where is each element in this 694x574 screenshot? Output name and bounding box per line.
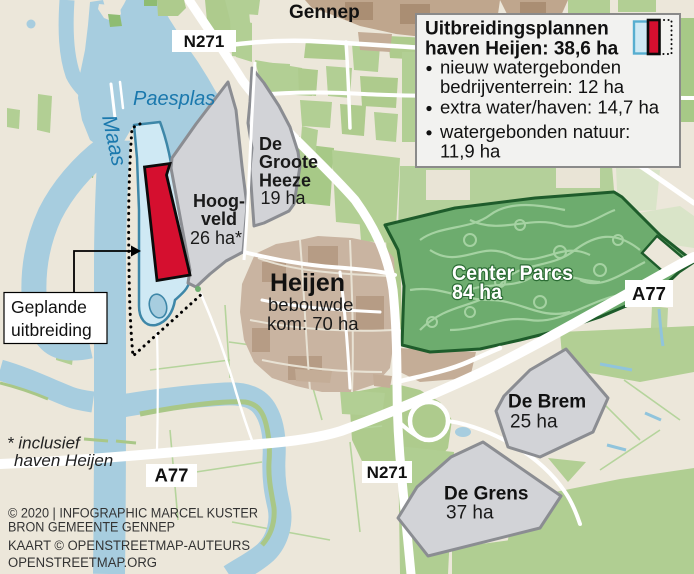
svg-text:A77: A77	[632, 283, 666, 304]
svg-text:19 ha: 19 ha	[261, 188, 307, 208]
svg-text:De Brem: De Brem	[508, 392, 586, 413]
svg-text:haven Heijen: haven Heijen	[14, 451, 113, 470]
svg-text:26 ha*: 26 ha*	[190, 228, 242, 248]
svg-text:37 ha: 37 ha	[446, 503, 494, 524]
svg-text:uitbreiding: uitbreiding	[11, 320, 92, 340]
svg-text:bedrijventerrein: 12 ha: bedrijventerrein: 12 ha	[440, 76, 625, 97]
svg-text:Heijen: Heijen	[270, 269, 345, 297]
svg-text:De: De	[259, 134, 282, 154]
svg-text:veld: veld	[201, 209, 237, 229]
svg-text:A77: A77	[155, 465, 189, 486]
svg-text:N271: N271	[367, 463, 408, 482]
svg-text:kom: 70 ha: kom: 70 ha	[267, 313, 359, 334]
svg-text:OPENSTREETMAP.ORG: OPENSTREETMAP.ORG	[8, 555, 157, 571]
svg-text:Geplande: Geplande	[11, 297, 87, 317]
svg-text:extra water/haven: 14,7 ha: extra water/haven: 14,7 ha	[440, 97, 660, 118]
svg-text:Uitbreidingsplannen: Uitbreidingsplannen	[425, 18, 609, 39]
svg-text:N271: N271	[184, 32, 225, 51]
svg-text:Groote: Groote	[259, 152, 318, 172]
svg-text:Gennep: Gennep	[289, 2, 360, 23]
svg-text:84 ha: 84 ha	[452, 281, 502, 304]
svg-text:nieuw watergebonden: nieuw watergebonden	[440, 57, 621, 78]
svg-text:11,9 ha: 11,9 ha	[440, 141, 501, 162]
svg-text:25 ha: 25 ha	[510, 412, 558, 433]
svg-text:KAART © OPENSTREETMAP-AUTEURS: KAART © OPENSTREETMAP-AUTEURS	[8, 538, 250, 554]
svg-text:De Grens: De Grens	[444, 484, 528, 505]
svg-text:BRON GEMEENTE GENNEP: BRON GEMEENTE GENNEP	[8, 520, 175, 536]
svg-text:bebouwde: bebouwde	[268, 294, 353, 315]
svg-text:watergebonden natuur:: watergebonden natuur:	[439, 121, 630, 142]
svg-text:Hoog-: Hoog-	[193, 191, 245, 211]
svg-text:Paesplas: Paesplas	[133, 88, 215, 110]
